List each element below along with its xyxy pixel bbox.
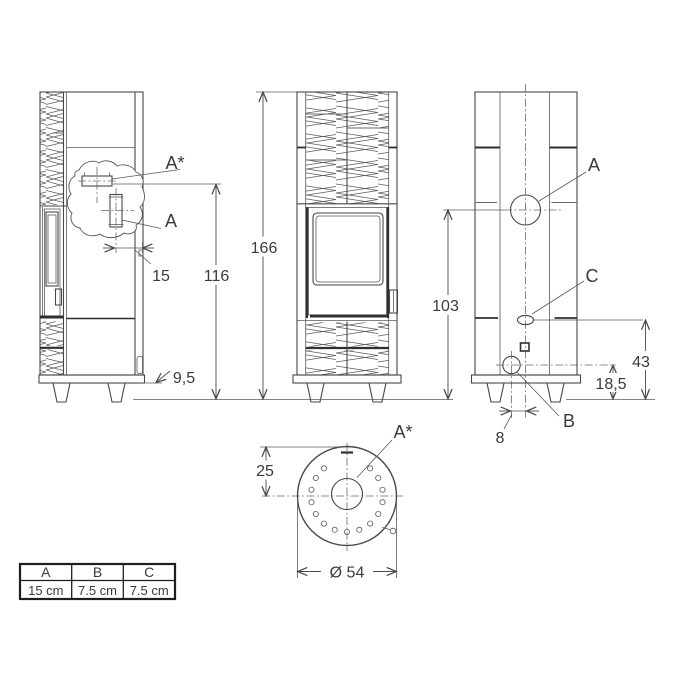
back-junction-box <box>521 343 530 351</box>
dim-leg-height: 9,5 <box>173 370 195 387</box>
back-leg <box>547 383 564 402</box>
back-body-outline <box>475 92 577 375</box>
label-outlet-b: B <box>563 411 575 431</box>
top-handle-knob <box>390 528 396 534</box>
front-hatch-bottom-3 <box>306 351 347 376</box>
table-header-c: C <box>144 564 154 580</box>
stove-dimension-drawing: A* A 15 116 9,5 <box>0 0 700 700</box>
side-leg <box>108 383 125 402</box>
side-cutaway-outline <box>67 161 144 238</box>
technical-drawing-canvas: A* A 15 116 9,5 <box>0 0 700 700</box>
front-window <box>313 213 383 285</box>
dim-top-flue-offset: 25 <box>256 463 274 480</box>
leader-outlet-c <box>532 281 584 314</box>
dim-outlet-b-height: 18,5 <box>595 376 626 393</box>
front-door-frame <box>309 208 387 316</box>
leader-outlet-a <box>539 172 586 201</box>
dim-flue-wall-offset: 15 <box>152 268 170 285</box>
table-header-b: B <box>93 564 102 580</box>
dim-back-outlet-height: 103 <box>432 298 459 315</box>
side-door-glass-inner <box>48 215 56 283</box>
dim-top-diameter: Ø 54 <box>330 565 365 582</box>
front-base-plate <box>293 375 401 383</box>
leader-outlet-b <box>517 372 559 416</box>
top-view: A* 25 Ø 54 <box>251 422 413 582</box>
table-value-c: 7.5 cm <box>130 583 169 598</box>
label-outlet-a: A <box>588 155 600 175</box>
dim-total-height: 166 <box>251 240 278 257</box>
front-hatch-top-left <box>306 93 347 205</box>
back-leg <box>487 383 504 402</box>
dim-rear-flue-height: 116 <box>204 268 230 285</box>
side-hatch-lower-panel-2 <box>41 350 64 375</box>
side-hatch-lower-panel-1 <box>41 322 64 347</box>
front-hatch-bottom-2 <box>347 323 389 347</box>
front-view: 166 <box>246 92 401 402</box>
front-window-inner <box>316 216 380 282</box>
front-hatch-bottom-4 <box>347 351 389 376</box>
front-hatch-top-right <box>347 93 389 205</box>
table-value-b: 7.5 cm <box>78 583 117 598</box>
front-hatch-bottom-1 <box>306 323 347 347</box>
label-top-flue: A* <box>393 422 412 442</box>
spec-table: A B C 15 cm 7.5 cm 7.5 cm <box>20 564 175 599</box>
label-flue-rear: A <box>165 211 177 231</box>
side-hatch-upper-panel <box>41 93 64 206</box>
label-outlet-c: C <box>586 266 599 286</box>
side-view: A* A 15 116 9,5 <box>39 92 233 402</box>
table-header-a: A <box>41 564 51 580</box>
dim-95-leader <box>156 371 170 383</box>
table-value-a: 15 cm <box>28 583 63 598</box>
side-door-handle <box>56 289 62 305</box>
dim-outlet-c-height: 43 <box>632 354 650 371</box>
dim-8-leader <box>504 414 512 429</box>
dim-outlet-b-offset: 8 <box>496 430 505 447</box>
side-leg <box>53 383 70 402</box>
leader-top-flue <box>357 440 392 478</box>
label-flue-top: A* <box>165 153 184 173</box>
back-view: A 103 C B 43 18,5 8 <box>428 84 655 447</box>
side-base-plate <box>39 375 145 383</box>
side-rear-bracket <box>137 357 143 374</box>
